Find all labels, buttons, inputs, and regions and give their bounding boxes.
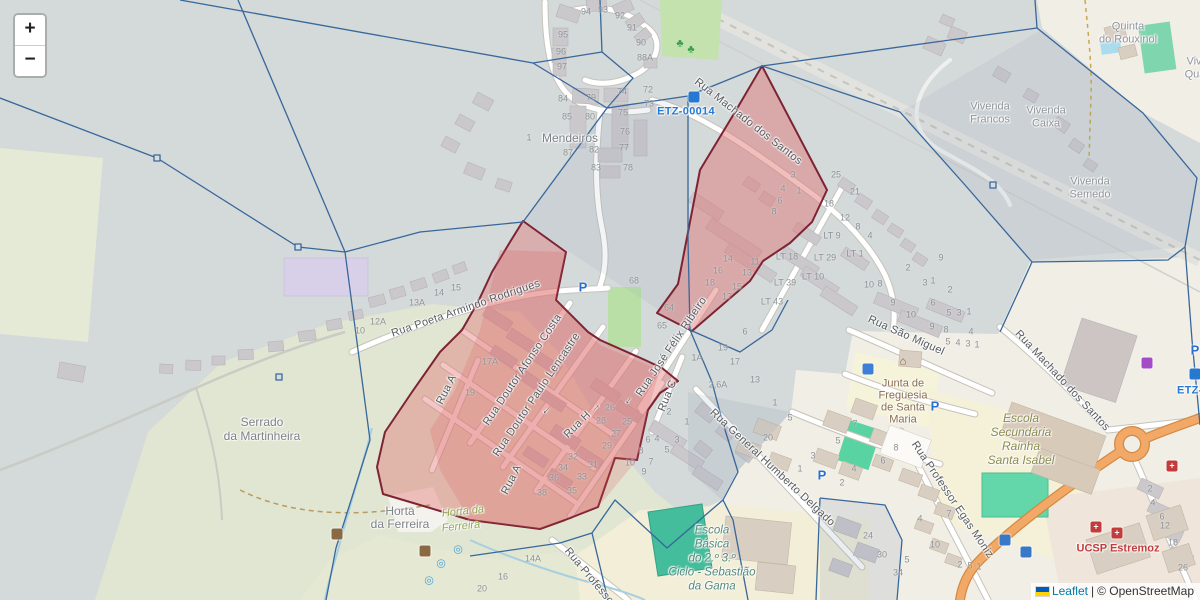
map-canvas <box>0 0 1200 600</box>
field <box>0 148 103 342</box>
building <box>284 258 368 296</box>
zoom-in-button[interactable]: + <box>15 15 45 46</box>
park <box>660 0 722 60</box>
green-building <box>1138 22 1176 74</box>
ukraine-flag-icon <box>1036 587 1049 596</box>
zoom-out-button[interactable]: − <box>15 46 45 76</box>
park <box>608 287 641 347</box>
osm-attribution: © OpenStreetMap <box>1097 584 1194 598</box>
zoom-control: + − <box>13 13 47 78</box>
leaflet-link[interactable]: Leaflet <box>1052 584 1088 598</box>
attribution-bar: Leaflet|© OpenStreetMap <box>1031 583 1200 600</box>
leaflet-map[interactable]: Rua Machado dos SantosRua Poeta Armindo … <box>0 0 1200 600</box>
attribution-separator: | <box>1091 584 1094 598</box>
